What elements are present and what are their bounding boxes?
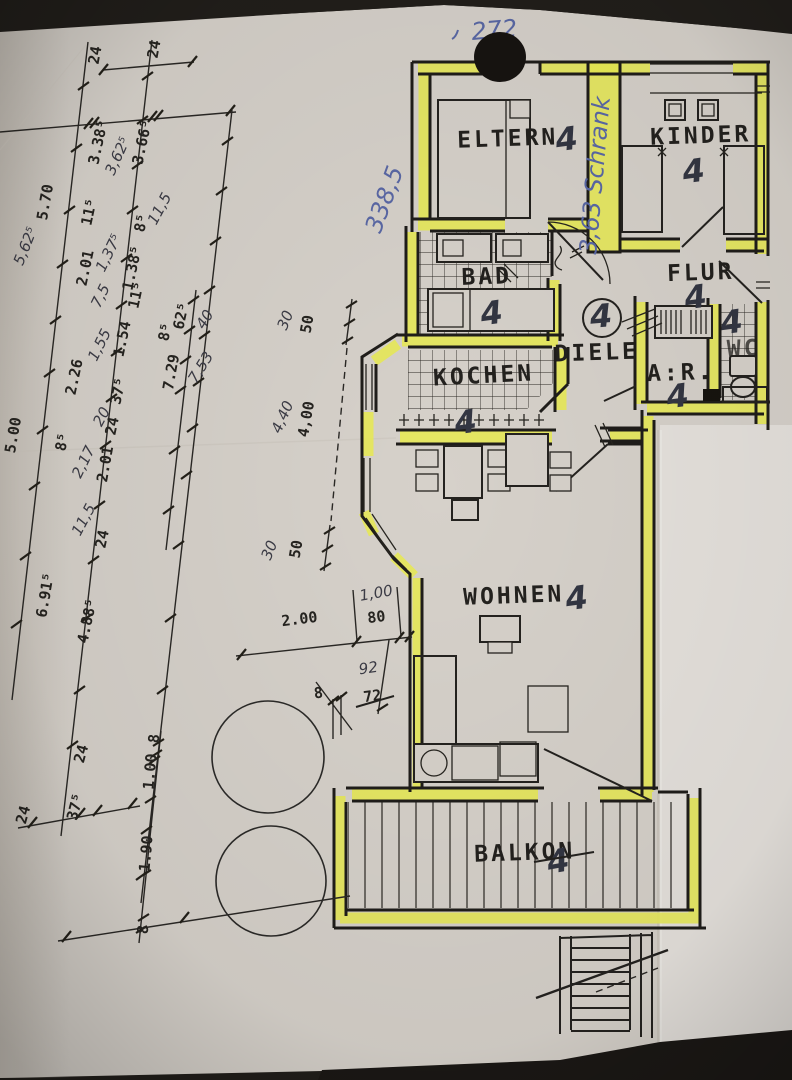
room-label-eltern: ELTERN bbox=[457, 124, 559, 154]
stool bbox=[452, 500, 478, 520]
paper-edge-shade bbox=[0, 28, 70, 1078]
black-dot-marker bbox=[474, 32, 526, 82]
dim-label: 24 bbox=[101, 415, 122, 436]
bad-vanity-left bbox=[437, 234, 491, 262]
dim-label: 8⁵ bbox=[51, 431, 72, 452]
dim-label: 8⁵ bbox=[154, 321, 175, 342]
dim-label: 92 bbox=[358, 658, 379, 678]
dim-label: 1.00 bbox=[139, 753, 160, 791]
dim-label: 24 bbox=[144, 39, 165, 60]
dim-label: 24 bbox=[91, 528, 112, 549]
dim-label: 50 bbox=[297, 314, 318, 335]
room-label-wohnen: WOHNEN bbox=[463, 581, 565, 611]
dim-label: 50 bbox=[286, 539, 307, 560]
bad-vanity-right bbox=[496, 234, 548, 262]
dim-label: 8 bbox=[134, 924, 153, 935]
dresser bbox=[480, 616, 520, 642]
room-label-kochen: KOCHEN bbox=[432, 360, 534, 391]
dim-label: 24 bbox=[85, 45, 106, 66]
room-label-diele: DIELE bbox=[554, 339, 639, 368]
chair bbox=[416, 450, 438, 467]
dining-table bbox=[444, 446, 482, 498]
room-label-bad: BAD bbox=[461, 263, 512, 291]
abstellraum-door-sill bbox=[703, 389, 720, 401]
floorplan-drawing: ELTERN 4 KINDER 4 BAD 4 FLUR 4 4 DIELE K… bbox=[0, 0, 792, 1080]
kinder-box-left bbox=[665, 100, 685, 120]
dim-label: 80 bbox=[366, 607, 386, 627]
paper-fold-bright-area bbox=[660, 425, 792, 1065]
chair bbox=[416, 474, 438, 491]
kinder-box-right bbox=[698, 100, 718, 120]
room-mark-diele: 4 bbox=[587, 296, 613, 336]
chair bbox=[550, 475, 571, 491]
dresser-drawer bbox=[488, 642, 512, 653]
room-label-kinder: KINDER bbox=[650, 121, 752, 151]
dim-label: 1.90 bbox=[135, 835, 156, 873]
table bbox=[506, 434, 548, 486]
photo-of-floorplan: ELTERN 4 KINDER 4 BAD 4 FLUR 4 4 DIELE K… bbox=[0, 0, 792, 1080]
dim-label: 8 bbox=[145, 733, 164, 744]
eltern-nightstand bbox=[510, 100, 530, 118]
chair bbox=[550, 452, 571, 468]
